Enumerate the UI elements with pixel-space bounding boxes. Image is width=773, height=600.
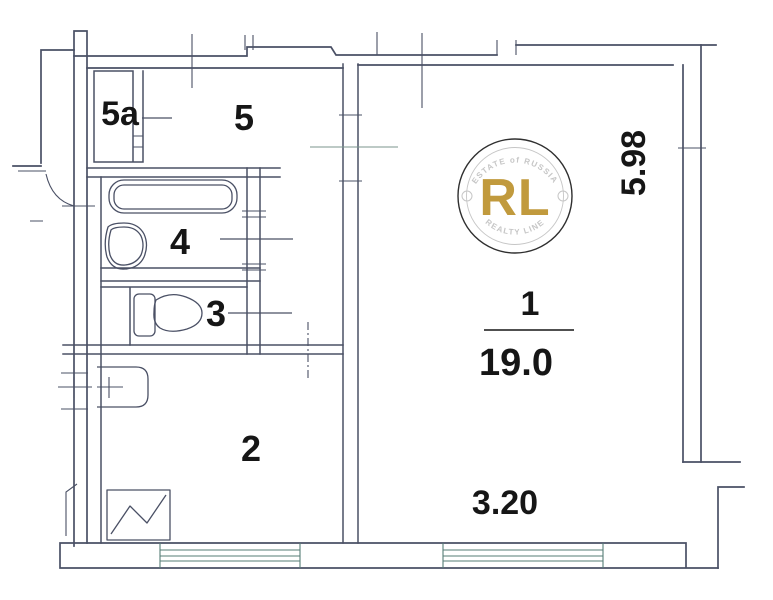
toilet-tank [134,294,155,336]
room-label-2: 2 [241,428,261,469]
bathroom-right-wall-ticks [242,211,266,270]
entrance-door-arc [46,174,74,206]
washbasin-drain-dot [121,244,124,247]
stair-landing-wall [13,50,74,166]
bathroom-top-wall [87,168,280,177]
partition-walls [30,64,706,543]
room-label-3: 3 [206,293,226,334]
bathtub-inner [114,185,232,209]
room-label-5: 5 [234,97,254,138]
room-label-4: 4 [170,221,190,262]
left-wall-ticks [30,206,95,409]
bathroom-toilet-wall [101,268,260,281]
door-leaf-mark [66,484,77,536]
windows [160,543,603,568]
right-wall [683,45,701,462]
section-break-marks [497,40,516,55]
labels: 5a 5 4 3 2 1 19.0 3.20 5.98 [101,95,653,522]
room-label-1: 1 [521,285,540,323]
bathroom-right-wall [247,168,260,354]
wardrobe-zigzag [111,495,166,534]
right-wall-step [683,462,744,568]
dimension-height-label: 5.98 [615,130,653,196]
floor-plan-page: 5a 5 4 3 2 1 19.0 3.20 5.98 [0,0,773,600]
room-label-5a: 5a [101,95,140,133]
top-wall-inner [87,65,673,68]
bottom-wall [60,543,718,568]
window-room1-glazing [443,550,603,561]
toilet-tank-dot [143,314,146,317]
wall-room5-room1 [343,64,358,543]
room1-area-value: 19.0 [479,342,553,384]
hall-top-wall [63,345,343,354]
dimension-width-label: 3.20 [472,484,538,522]
washbasin-inner [109,227,143,265]
watermark-stamp: RL ESTATE of RUSSIA REALTY LINE [458,139,572,253]
window-room2-glazing [160,550,300,561]
top-wall-outer [74,45,716,56]
floor-plan-canvas: 5a 5 4 3 2 1 19.0 3.20 5.98 [0,0,773,600]
toilet-bowl-icon [154,295,202,332]
closet-5a-door-ticks [133,136,143,147]
left-wall [74,31,87,546]
